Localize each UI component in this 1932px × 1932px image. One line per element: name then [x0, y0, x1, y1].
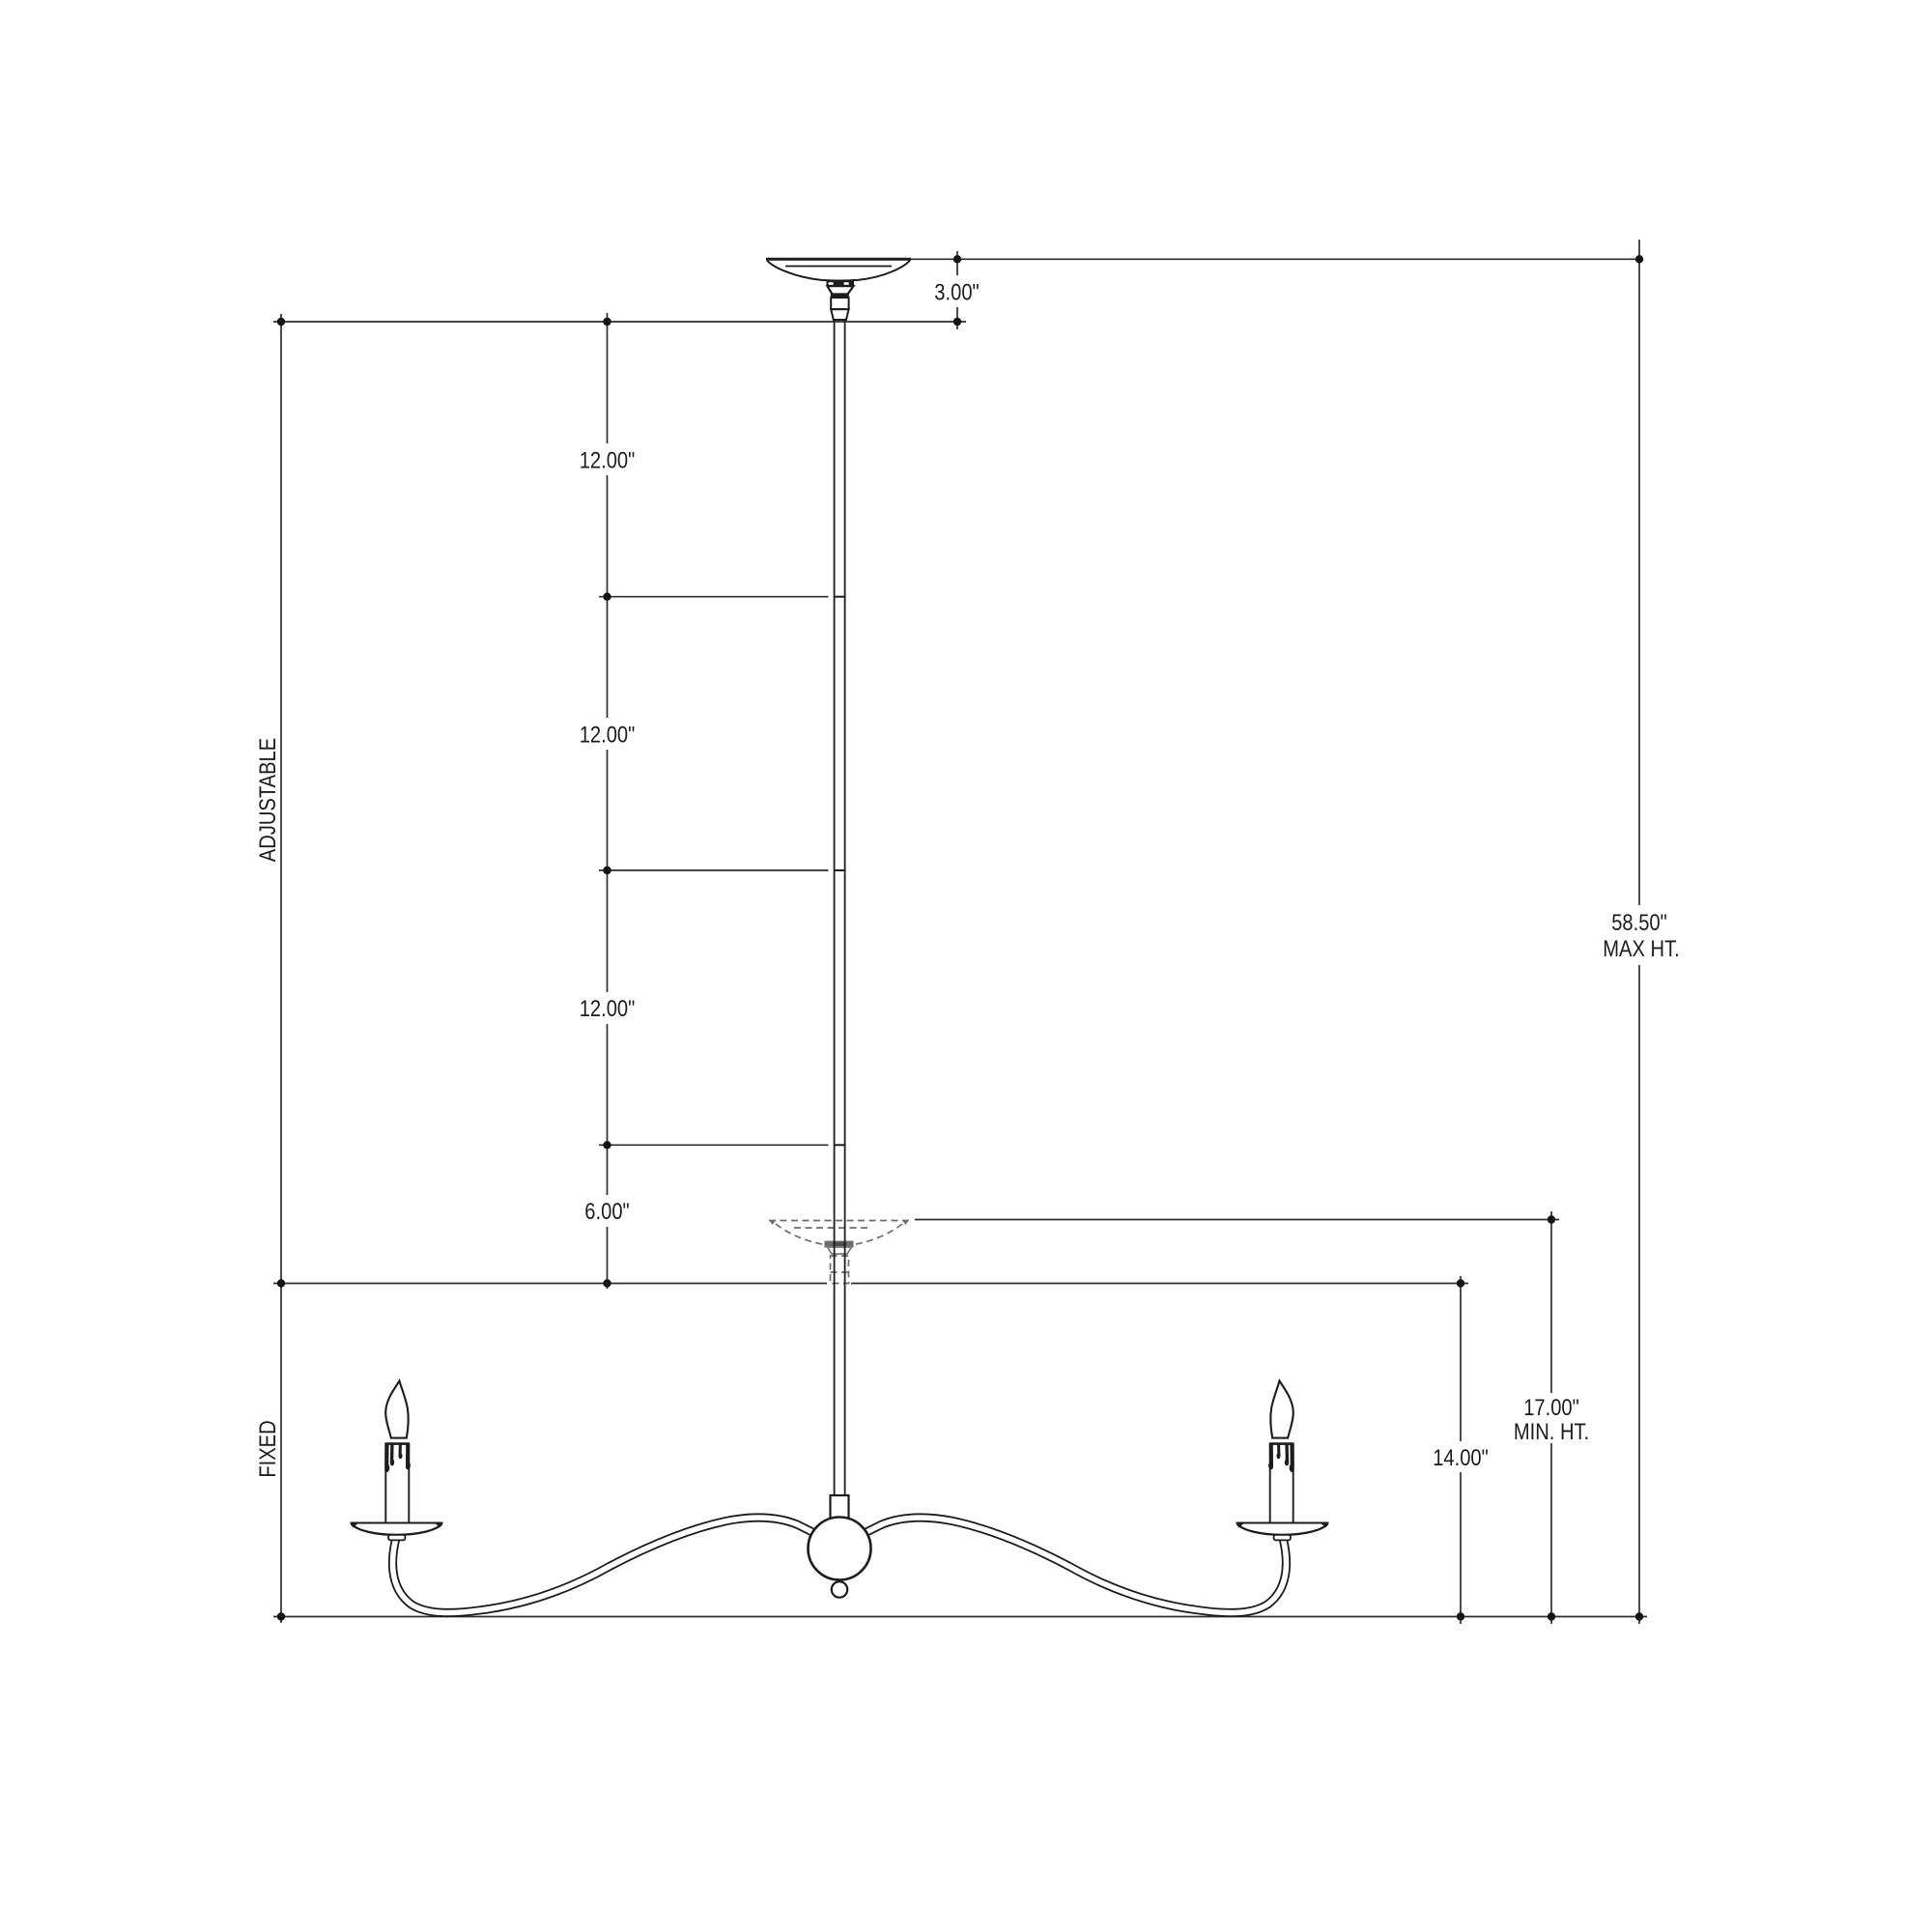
- svg-text:MAX HT.: MAX HT.: [1603, 935, 1680, 961]
- svg-text:12.00": 12.00": [580, 722, 636, 748]
- svg-text:6.00": 6.00": [584, 1198, 629, 1224]
- svg-text:ADJUSTABLE: ADJUSTABLE: [254, 738, 280, 862]
- svg-text:12.00": 12.00": [580, 447, 636, 473]
- svg-text:17.00": 17.00": [1523, 1394, 1579, 1420]
- svg-text:12.00": 12.00": [580, 996, 636, 1022]
- svg-text:MIN. HT.: MIN. HT.: [1514, 1418, 1589, 1444]
- svg-text:3.00": 3.00": [934, 279, 979, 305]
- svg-text:58.50": 58.50": [1611, 909, 1667, 935]
- svg-text:FIXED: FIXED: [254, 1420, 280, 1477]
- svg-text:14.00": 14.00": [1433, 1444, 1489, 1470]
